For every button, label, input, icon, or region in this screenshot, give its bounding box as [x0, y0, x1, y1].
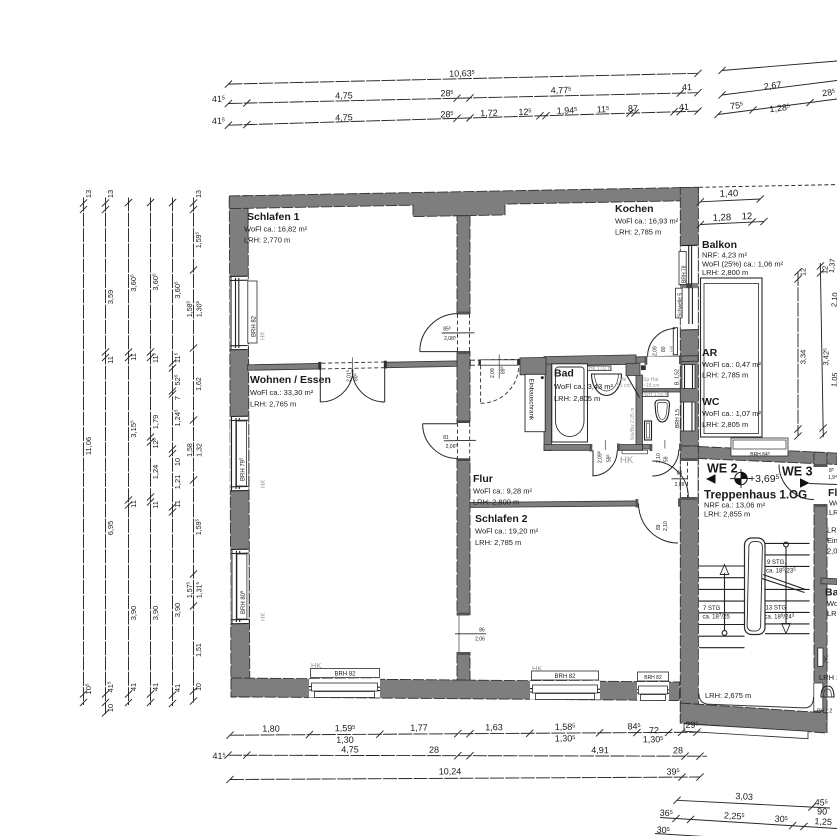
svg-text:LRH: LRH	[827, 526, 837, 535]
svg-text:WoFl ca.: 1,07 m²: WoFl ca.: 1,07 m²	[702, 409, 762, 418]
svg-text:HK: HK	[311, 661, 321, 670]
svg-text:1,51: 1,51	[196, 643, 203, 657]
svg-text:Balkon: Balkon	[702, 239, 737, 251]
svg-text:WoFl ca.: 0,47 m²: WoFl ca.: 0,47 m²	[702, 360, 762, 369]
svg-text:41: 41	[129, 683, 138, 691]
svg-text:WoFl ca.: 3,43 m²: WoFl ca.: 3,43 m²	[554, 382, 614, 391]
svg-text:2,06: 2,06	[475, 637, 485, 643]
svg-text:10: 10	[106, 704, 115, 712]
svg-text:1,30: 1,30	[336, 735, 354, 745]
svg-text:2,0: 2,0	[827, 547, 837, 556]
svg-text:LRH 2: LRH 2	[819, 673, 837, 682]
svg-text:59: 59	[664, 456, 670, 462]
svg-text:HK: HK	[620, 455, 634, 466]
svg-text:LRH: 2,785 m: LRH: 2,785 m	[475, 538, 521, 547]
svg-text:WH 1,55 m: WH 1,55 m	[644, 392, 669, 398]
svg-text:3,90: 3,90	[151, 606, 160, 621]
svg-text:WoFl ca.: 16,82 m²: WoFl ca.: 16,82 m²	[244, 225, 308, 234]
svg-text:1,945: 1,945	[557, 105, 578, 115]
svg-text:11: 11	[173, 500, 182, 508]
svg-text:4,775: 4,775	[551, 85, 572, 95]
svg-text:LR: LR	[829, 508, 837, 517]
svg-text:Wo: Wo	[829, 499, 837, 508]
svg-text:BRH 795: BRH 795	[239, 457, 247, 481]
svg-text:41: 41	[682, 82, 692, 92]
svg-text:3,34: 3,34	[798, 350, 807, 365]
svg-text:41: 41	[679, 102, 689, 112]
svg-text:1,05: 1,05	[829, 372, 837, 387]
svg-text:86: 86	[479, 628, 485, 634]
svg-text:B. 1,52: B. 1,52	[675, 369, 681, 385]
svg-text:1,305: 1,305	[555, 733, 576, 743]
svg-text:HK: HK	[532, 664, 542, 673]
svg-text:Wa/Bw 2,05 m: Wa/Bw 2,05 m	[630, 408, 636, 440]
svg-text:PH 1,2: PH 1,2	[817, 709, 833, 715]
svg-text:WoF: WoF	[827, 599, 837, 608]
svg-text:1,28: 1,28	[713, 212, 732, 223]
svg-text:ca. 185/235: ca. 185/235	[766, 567, 796, 575]
svg-text:HK: HK	[670, 344, 676, 352]
svg-text:Ein: Ein	[827, 536, 837, 545]
svg-text:2,10: 2,10	[663, 521, 669, 531]
svg-text:11: 11	[106, 356, 115, 364]
svg-text:3,90: 3,90	[173, 603, 182, 618]
svg-text:ca. 189/243: ca. 189/243	[765, 613, 795, 621]
svg-text:Schlafen 1: Schlafen 1	[247, 211, 300, 223]
svg-text:Kochen: Kochen	[615, 203, 654, 215]
svg-text:84: 84	[677, 471, 683, 477]
svg-text:WE 2: WE 2	[707, 462, 738, 476]
svg-text:11: 11	[129, 500, 138, 508]
svg-text:1,24: 1,24	[151, 465, 160, 480]
svg-text:3,59: 3,59	[106, 290, 115, 305]
svg-text:10,24: 10,24	[439, 766, 462, 776]
svg-text:BRH 82: BRH 82	[554, 674, 576, 680]
svg-text:2,67: 2,67	[763, 79, 782, 91]
svg-text:28: 28	[429, 745, 439, 755]
svg-text:WoFl ca.: 9,28 m²: WoFl ca.: 9,28 m²	[473, 487, 533, 496]
svg-text:AR: AR	[702, 347, 718, 359]
svg-text:HK: HK	[261, 613, 267, 621]
svg-text:LRH: LRH	[827, 609, 837, 618]
svg-text:1,58: 1,58	[187, 443, 194, 457]
svg-text:NRF: 4,23 m²: NRF: 4,23 m²	[702, 251, 748, 260]
svg-text:WE 3: WE 3	[782, 465, 813, 479]
svg-text:12: 12	[798, 268, 807, 276]
svg-text:9 STG.: 9 STG.	[767, 560, 786, 566]
svg-text:1,63: 1,63	[485, 722, 503, 732]
svg-text:13: 13	[106, 190, 115, 198]
svg-text:12: 12	[742, 211, 753, 222]
svg-text:2,10: 2,10	[829, 292, 837, 307]
svg-text:BRH 805: BRH 805	[239, 590, 247, 614]
svg-text:Flur: Flur	[473, 473, 493, 485]
svg-text:1,25: 1,25	[814, 816, 832, 827]
svg-text:13: 13	[196, 190, 203, 198]
svg-text:2,09: 2,09	[490, 368, 496, 378]
svg-text:1,72: 1,72	[480, 108, 498, 118]
svg-text:LRH: 2,855 m: LRH: 2,855 m	[704, 510, 750, 519]
svg-text:LRH: 2,805 m: LRH: 2,805 m	[554, 394, 600, 403]
svg-text:LRH: 2,805 m: LRH: 2,805 m	[702, 420, 748, 429]
svg-text:BRH 78: BRH 78	[681, 265, 687, 283]
svg-text:Schlafen 2: Schlafen 2	[475, 513, 528, 525]
svg-text:2,09: 2,09	[675, 482, 685, 488]
svg-text:3,90: 3,90	[129, 606, 138, 621]
svg-text:1,40: 1,40	[720, 188, 739, 199]
svg-text:89: 89	[656, 524, 662, 530]
svg-text:11,06: 11,06	[84, 437, 93, 455]
svg-text:7 STG: 7 STG	[703, 606, 721, 612]
svg-text:1,37: 1,37	[827, 258, 837, 273]
svg-text:1,77: 1,77	[410, 723, 428, 733]
svg-text:1,79: 1,79	[151, 415, 160, 430]
svg-text:1,32: 1,32	[197, 443, 204, 457]
svg-text:ca. 187/25: ca. 187/25	[703, 613, 731, 621]
svg-text:10: 10	[196, 683, 203, 691]
svg-text:Schwelle 5: Schwelle 5	[677, 293, 683, 317]
svg-text:11: 11	[151, 501, 160, 509]
svg-text:4,91: 4,91	[591, 745, 609, 755]
svg-text:BRH 82: BRH 82	[252, 315, 258, 337]
svg-text:28: 28	[673, 745, 683, 755]
svg-text:BRH 845: BRH 845	[750, 452, 770, 459]
svg-text:LRH: 2,770 m: LRH: 2,770 m	[244, 236, 290, 245]
svg-text:1,585: 1,585	[555, 722, 576, 732]
svg-text:7: 7	[173, 396, 182, 400]
svg-text:87: 87	[628, 103, 638, 113]
svg-text:Fl: Fl	[828, 487, 837, 499]
svg-text:+3,695: +3,695	[749, 473, 780, 485]
svg-text:41: 41	[173, 684, 182, 692]
svg-text:2,09: 2,09	[653, 346, 659, 356]
svg-text:3,03: 3,03	[735, 791, 753, 802]
svg-text:He 1,02 m: He 1,02 m	[589, 366, 612, 372]
svg-text:80: 80	[661, 346, 667, 352]
svg-text:BRH 1,5: BRH 1,5	[675, 409, 681, 428]
svg-text:13: 13	[84, 190, 93, 198]
svg-text:81: 81	[443, 435, 449, 441]
svg-text:Einbauschrank: Einbauschrank	[528, 379, 535, 422]
svg-text:90: 90	[817, 806, 828, 816]
svg-text:LRH: 2,785 m: LRH: 2,785 m	[615, 228, 661, 237]
svg-text:LRH: 2,800 m: LRH: 2,800 m	[473, 498, 519, 507]
svg-text:Wohnen / Essen: Wohnen / Essen	[250, 374, 331, 386]
svg-text:11: 11	[129, 353, 138, 361]
svg-text:LRH: 2,785 m: LRH: 2,785 m	[702, 371, 748, 380]
svg-text:1,305: 1,305	[643, 734, 664, 744]
svg-text:41: 41	[151, 683, 160, 691]
svg-text:WoFl ca.: 19,20 m²: WoFl ca.: 19,20 m²	[475, 527, 539, 536]
svg-text:4,75: 4,75	[335, 90, 353, 100]
svg-text:LRH: 2,675 m: LRH: 2,675 m	[705, 691, 751, 700]
svg-text:HK: HK	[261, 480, 267, 488]
svg-text:4,75: 4,75	[341, 744, 359, 754]
svg-text:10,635: 10,635	[449, 68, 475, 79]
svg-text:WoFl ca.: 16,93 m²: WoFl ca.: 16,93 m²	[615, 217, 679, 226]
svg-text:Bad: Bad	[554, 368, 574, 380]
svg-text:~18 cm: ~18 cm	[643, 383, 660, 389]
svg-text:10: 10	[173, 458, 182, 466]
svg-text:4,75: 4,75	[335, 112, 353, 122]
svg-text:LRH: 2,765 m: LRH: 2,765 m	[250, 400, 296, 409]
svg-text:1,595: 1,595	[335, 723, 356, 733]
svg-text:LRH: 2,800 m: LRH: 2,800 m	[702, 268, 748, 277]
svg-text:WoFl ca.: 33,30 m²: WoFl ca.: 33,30 m²	[250, 388, 314, 397]
svg-text:6,95: 6,95	[106, 521, 115, 536]
svg-text:55 cm: 55 cm	[617, 383, 631, 389]
svg-text:1,21: 1,21	[173, 475, 182, 490]
svg-text:HK: HK	[261, 332, 267, 340]
svg-text:WC: WC	[702, 396, 720, 408]
svg-text:NRF ca.: 13,06 m²: NRF ca.: 13,06 m²	[704, 501, 766, 510]
svg-text:BRH 82: BRH 82	[644, 675, 662, 681]
svg-text:Ba: Ba	[825, 587, 837, 599]
svg-text:1,62: 1,62	[196, 377, 203, 391]
svg-text:13 STG: 13 STG	[766, 605, 787, 611]
svg-text:1,80: 1,80	[262, 724, 280, 734]
svg-text:BRH 82: BRH 82	[334, 672, 356, 678]
